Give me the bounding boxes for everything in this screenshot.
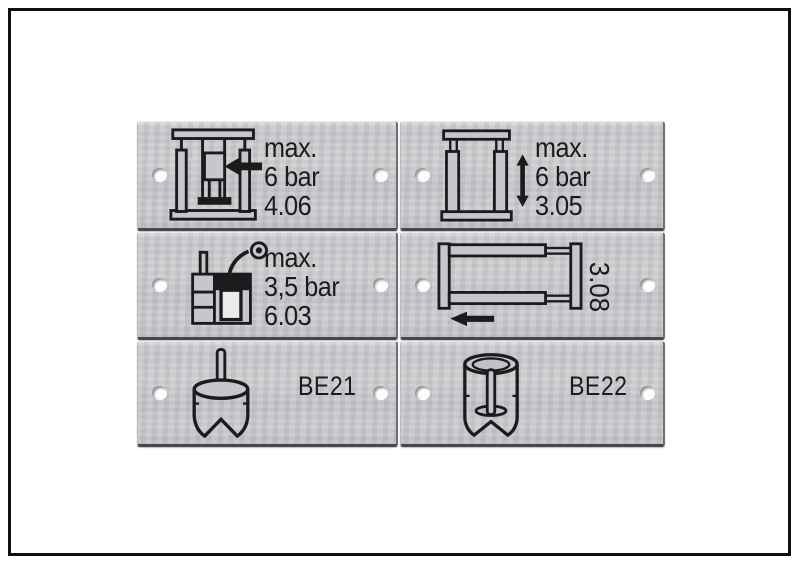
mounting-hole-icon	[415, 278, 430, 292]
label-line: 6.03	[264, 301, 339, 330]
plate-label: max. 3,5 bar 6.03	[264, 243, 339, 330]
plate-label: max. 6 bar 4.06	[264, 133, 319, 220]
label-line: 3.05	[535, 191, 590, 220]
label-line: 3,5 bar	[264, 272, 339, 301]
press-ram-arrow-icon	[168, 127, 264, 223]
plate-top-left: max. 6 bar 4.06	[137, 121, 398, 231]
plate-bottom-left: BE21	[137, 341, 398, 447]
plate-label: max. 6 bar 3.05	[535, 133, 590, 220]
plate-bottom-right: BE22	[400, 341, 665, 447]
label-line: max.	[264, 133, 319, 162]
lubricator-spray-icon	[186, 240, 276, 330]
label-line: 6 bar	[264, 162, 319, 191]
mounting-hole-icon	[415, 168, 430, 182]
plate-middle-right: 3.08	[400, 232, 665, 340]
mounting-hole-icon	[373, 278, 388, 292]
mounting-hole-icon	[640, 278, 655, 292]
plate-top-right: max. 6 bar 3.05	[400, 121, 665, 231]
mounting-hole-icon	[152, 278, 167, 292]
mounting-hole-icon	[640, 168, 655, 182]
frame-horizontal-stroke-icon	[434, 241, 586, 327]
plate-label: BE21	[298, 372, 357, 400]
label-line: 6 bar	[535, 162, 590, 191]
label-line: max.	[535, 133, 590, 162]
cylinder-pin-inside-icon	[461, 351, 521, 437]
label-line: max.	[264, 243, 339, 272]
mounting-hole-icon	[373, 168, 388, 182]
label-line: 4.06	[264, 191, 319, 220]
plate-label-rotated: 3.08	[584, 250, 614, 324]
frame-vertical-stroke-icon	[439, 128, 531, 222]
mounting-hole-icon	[373, 386, 388, 400]
plate-label: BE22	[569, 372, 628, 400]
mounting-hole-icon	[415, 386, 430, 400]
mounting-hole-icon	[640, 386, 655, 400]
plate-middle-left: max. 3,5 bar 6.03	[137, 232, 398, 340]
cylinder-pin-top-icon	[191, 348, 251, 438]
mounting-hole-icon	[152, 168, 167, 182]
mounting-hole-icon	[152, 386, 167, 400]
